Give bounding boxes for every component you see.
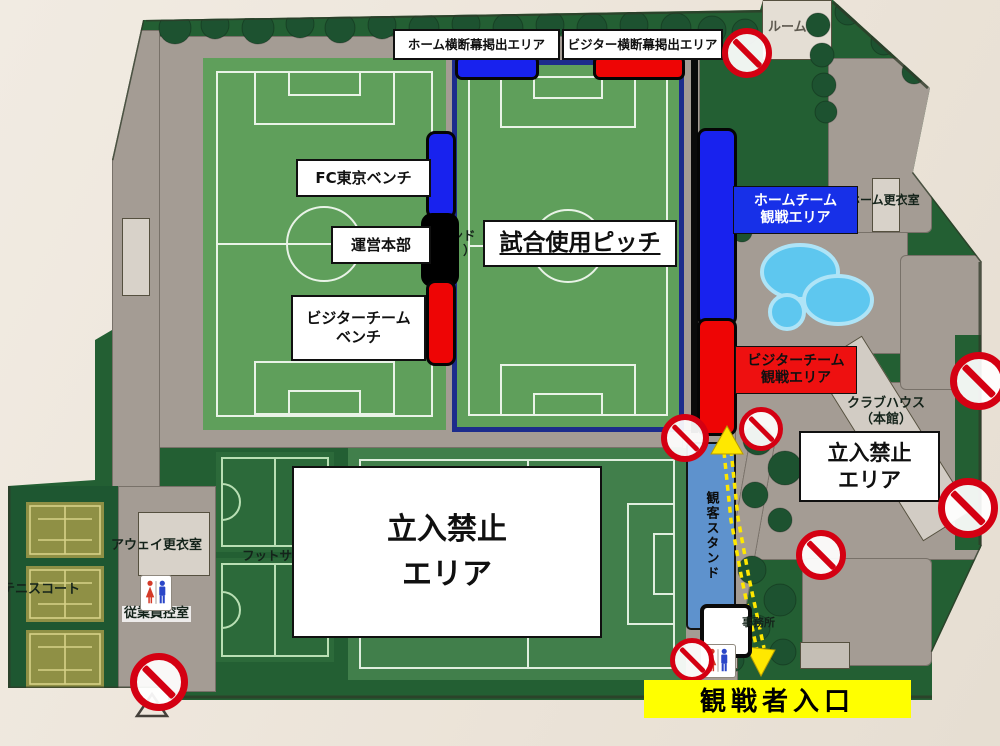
label-home-banner-area: ホーム横断幕掲出エリア xyxy=(393,29,560,60)
restroom-icon xyxy=(140,575,172,611)
room-label: ルーム xyxy=(768,20,807,36)
home-locker-label: ホーム更衣室 xyxy=(848,193,920,207)
no-entry-icon xyxy=(938,478,998,538)
visitor-spectator-strip xyxy=(697,318,737,436)
no-entry-icon xyxy=(722,28,772,78)
spectator-stand: 観客スタンド xyxy=(686,442,736,630)
label-home-spectator-area: ホームチーム 観戦エリア xyxy=(733,186,858,234)
spectator-entrance-banner: 観戦者入口 xyxy=(644,680,911,718)
visitor-bench-marker xyxy=(426,280,456,366)
away-locker-label: アウェイ更衣室 xyxy=(111,538,202,554)
no-entry-icon xyxy=(796,530,846,580)
tennis-court-label: テニスコート xyxy=(2,582,80,598)
label-fc-tokyo-bench: FC東京ベンチ xyxy=(296,159,431,197)
label-visitor-team-bench: ビジターチーム ベンチ xyxy=(291,295,426,361)
label-no-entry-center: 立入禁止 エリア xyxy=(292,466,602,638)
label-visitor-banner-area: ビジター横断幕掲出エリア xyxy=(562,29,723,60)
label-visitor-spectator-area: ビジターチーム 観戦エリア xyxy=(735,346,857,394)
label-match-pitch: 試合使用ピッチ xyxy=(483,220,677,267)
facility-map-photo: 観客スタンド ランド （ ） ルーム ホーム更衣室 クラブハウス （本館） アウ… xyxy=(0,0,1000,746)
no-entry-icon xyxy=(670,638,714,682)
label-operations-hq: 運営本部 xyxy=(331,226,431,264)
spectator-stand-label: 観客スタンド xyxy=(702,491,721,581)
label-no-entry-right: 立入禁止 エリア xyxy=(799,431,940,502)
no-entry-icon xyxy=(661,414,709,462)
no-entry-icon xyxy=(739,407,783,451)
no-entry-icon xyxy=(950,352,1000,410)
office-label: 事務所 xyxy=(742,616,775,629)
home-spectator-strip xyxy=(697,128,737,326)
clubhouse-label: クラブハウス （本館） xyxy=(836,396,936,427)
no-entry-icon xyxy=(130,653,188,711)
